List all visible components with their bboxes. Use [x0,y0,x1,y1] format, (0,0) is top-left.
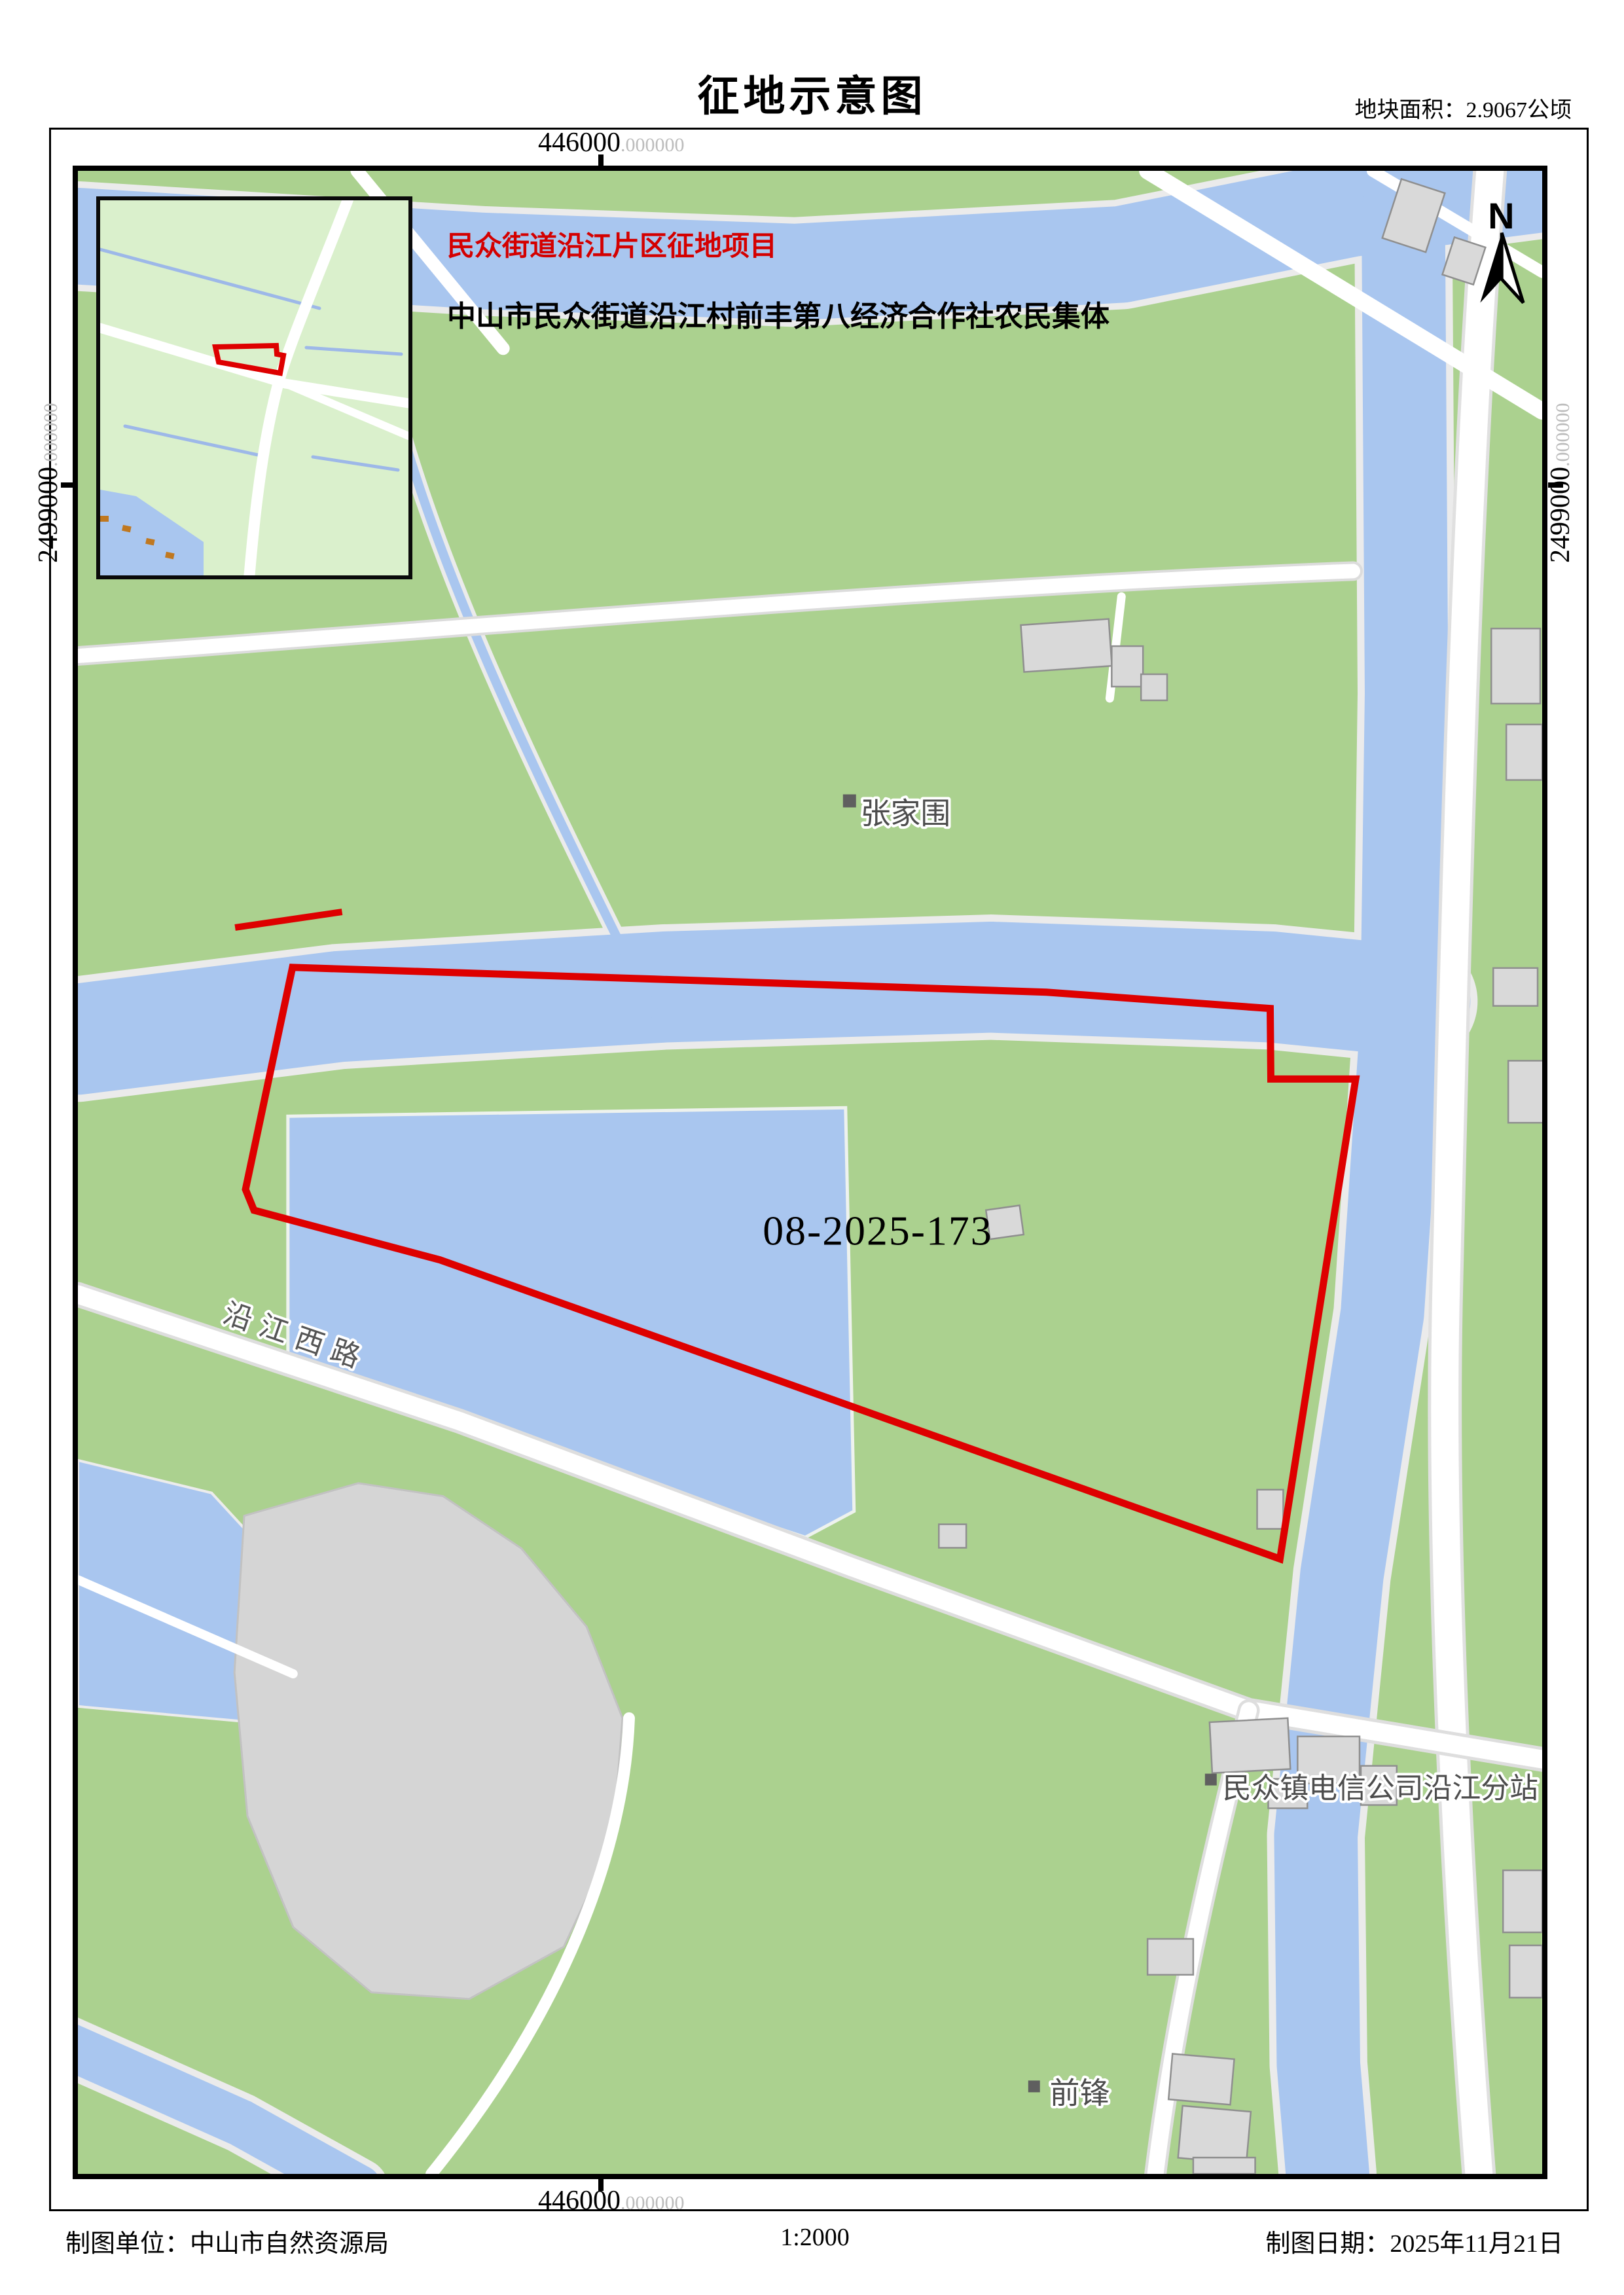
label-village: 张家围 [861,796,950,830]
north-label: N [1488,195,1514,236]
grid-label-bottom: 446000.000000 [538,2185,685,2216]
inset-locator-map [96,196,412,579]
project-name: 民众街道沿江片区征地项目 [447,224,1265,264]
label-qianfeng: 前锋 [1050,2076,1110,2110]
plot-area-note: 地块面积：2.9067公顷 [1355,92,1572,124]
map-sheet: 征地示意图 地块面积：2.9067公顷 446000.000000 446000… [0,0,1624,2295]
grid-label-left: 2499000.000000 [33,406,62,563]
label-telecom: 民众镇电信公司沿江分站 [1223,1772,1538,1804]
grid-tick-right [1548,482,1563,488]
footer-scale: 1:2000 [717,2223,913,2252]
footer-agency: 制图单位：中山市自然资源局 [65,2223,389,2259]
footer-date: 制图日期：2025年11月21日 [1265,2223,1563,2259]
grid-label-top: 446000.000000 [538,127,685,158]
parcel-id-label: 08-2025-173 [763,1208,992,1254]
project-owner: 中山市民众街道沿江村前丰第八经济合作社农民集体 [447,293,1265,334]
project-annotation: 民众街道沿江片区征地项目 中山市民众街道沿江村前丰第八经济合作社农民集体 [447,224,1265,334]
